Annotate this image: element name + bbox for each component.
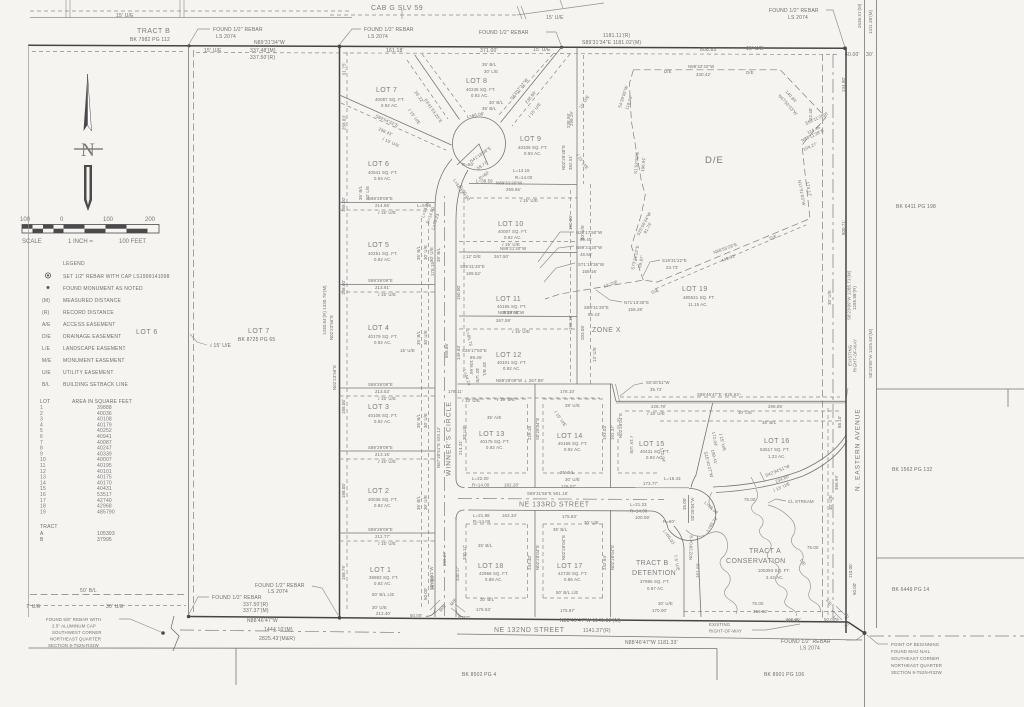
svg-text:N89'31'20"W: N89'31'20"W [496, 181, 523, 186]
svg-text:176.07': 176.07' [561, 484, 576, 489]
svg-text:S26'17'50"E: S26'17'50"E [462, 348, 487, 353]
svg-text:30' U/E: 30' U/E [475, 368, 480, 383]
svg-text:40036 SQ. FT.: 40036 SQ. FT. [368, 497, 398, 502]
svg-text:FOUND 1/2" REBAR: FOUND 1/2" REBAR [213, 27, 263, 33]
svg-text:LOT 4: LOT 4 [368, 325, 389, 332]
svg-text:15' U/E: 15' U/E [533, 47, 551, 53]
svg-text:0.92 AC.: 0.92 AC. [374, 581, 392, 586]
svg-text:ⅈ 15' U/E: ⅈ 15' U/E [210, 343, 232, 349]
svg-text:173.77': 173.77' [643, 481, 658, 486]
svg-text:19: 19 [40, 509, 46, 515]
svg-text:150.00': 150.00' [568, 215, 573, 230]
svg-text:S0'28'04"E: S0'28'04"E [535, 418, 540, 440]
svg-text:37995: 37995 [97, 537, 112, 543]
svg-text:FOUND 1/2" REBAR: FOUND 1/2" REBAR [479, 30, 529, 36]
svg-text:175.83': 175.83' [562, 514, 577, 519]
svg-text:35' B/L: 35' B/L [416, 245, 421, 260]
svg-text:SECTION 9-T52N-R32W: SECTION 9-T52N-R32W [48, 643, 100, 648]
svg-text:S71'13'36"W: S71'13'36"W [578, 262, 605, 267]
svg-text:R=60': R=60' [462, 162, 474, 167]
svg-text:2825.43'(M&R): 2825.43'(M&R) [259, 636, 295, 642]
svg-text:N89'29'09"W ⊥ 267.89': N89'29'09"W ⊥ 267.89' [496, 378, 544, 383]
svg-text:2.42 AC.: 2.42 AC. [766, 575, 784, 580]
svg-text:L/E: L/E [42, 346, 51, 352]
svg-text:182.28': 182.28' [504, 483, 519, 488]
svg-text:N02'28'04"E: N02'28'04"E [535, 545, 540, 570]
svg-text:LOT 17: LOT 17 [557, 563, 583, 570]
svg-text:1311.38'(M): 1311.38'(M) [868, 9, 873, 34]
svg-text:LEGEND: LEGEND [63, 261, 85, 267]
svg-text:LOT 8: LOT 8 [466, 78, 487, 85]
svg-text:50' B/L L/E: 50' B/L L/E [372, 592, 394, 597]
svg-text:N02'23'56"E: N02'23'56"E [332, 365, 337, 390]
svg-text:100 FEET: 100 FEET [119, 239, 146, 245]
svg-text:150.11': 150.11' [568, 315, 573, 330]
svg-text:R=14.00: R=14.00 [473, 519, 491, 524]
svg-text:12' D/E: 12' D/E [466, 254, 481, 259]
svg-text:178.10': 178.10' [560, 389, 575, 394]
svg-text:S89'29'09"E: S89'29'09"E [368, 382, 393, 387]
svg-text:150.00': 150.00' [456, 285, 461, 300]
svg-text:2636.91'(M): 2636.91'(M) [857, 3, 862, 28]
svg-text:S89'31'20"E: S89'31'20"E [584, 305, 609, 310]
svg-text:0.92 AC.: 0.92 AC. [486, 445, 504, 450]
svg-text:267.59': 267.59' [496, 318, 511, 323]
svg-text:30' U/E: 30' U/E [423, 330, 428, 345]
svg-text:808.83': 808.83' [700, 47, 718, 53]
svg-text:15' U/E: 15' U/E [400, 348, 415, 353]
svg-text:CAB G SLV 59: CAB G SLV 59 [371, 5, 423, 12]
svg-text:189.52': 189.52' [466, 271, 481, 276]
svg-text:LS 2074: LS 2074 [800, 646, 820, 652]
svg-text:LS 2074: LS 2074 [368, 34, 388, 40]
svg-text:30' U/E: 30' U/E [372, 605, 387, 610]
svg-text:0.92 AC.: 0.92 AC. [374, 419, 392, 424]
svg-text:30' U/E: 30' U/E [423, 495, 428, 510]
svg-text:BK 8725 PG 65: BK 8725 PG 65 [238, 337, 275, 343]
svg-text:FOUND 1/2" REBAR: FOUND 1/2" REBAR [364, 27, 414, 33]
svg-text:35' A/E: 35' A/E [487, 415, 502, 420]
svg-text:NORTHEAST QUARTER: NORTHEAST QUARTER [50, 637, 101, 642]
svg-text:S0'30'51"W: S0'30'51"W [429, 566, 434, 590]
svg-text:13' U/E: 13' U/E [592, 347, 597, 362]
svg-text:S89'46'47"E -525.63'-: S89'46'47"E -525.63'- [697, 392, 742, 397]
svg-text:40155 SQ. FT.: 40155 SQ. FT. [497, 304, 527, 309]
svg-text:192.37': 192.37' [610, 425, 615, 440]
svg-text:RIGHT-OF-WAY: RIGHT-OF-WAY [709, 629, 742, 634]
svg-text:N02'28'04"E: N02'28'04"E [688, 535, 694, 560]
svg-text:LOT 12: LOT 12 [496, 352, 522, 359]
svg-text:L=21.23: L=21.23 [630, 502, 647, 507]
svg-text:35.00': 35.00' [682, 497, 687, 510]
svg-text:800.71': 800.71' [841, 220, 846, 235]
svg-text:B/L: B/L [42, 382, 50, 388]
svg-text:40245 SQ. FT.: 40245 SQ. FT. [466, 87, 496, 92]
svg-text:175.87': 175.87' [560, 608, 575, 613]
svg-text:149.83': 149.83' [456, 345, 461, 360]
svg-text:40165 SQ. FT.: 40165 SQ. FT. [558, 441, 588, 446]
svg-text:S89'29'09"E: S89'29'09"E [368, 445, 393, 450]
svg-text:S89'31'34"E 1181.02'(M): S89'31'34"E 1181.02'(M) [582, 40, 641, 46]
svg-text:ⅈ 15' U/E: ⅈ 15' U/E [378, 459, 396, 464]
svg-text:337.48'(M): 337.48'(M) [250, 48, 276, 54]
svg-text:NE 132ND STREET: NE 132ND STREET [494, 627, 565, 634]
svg-text:30' U/E: 30' U/E [462, 425, 467, 440]
svg-text:40.00': 40.00' [845, 52, 860, 58]
svg-text:212.40': 212.40' [376, 611, 391, 616]
svg-text:228.78': 228.78' [651, 404, 666, 409]
svg-text:193.03': 193.03' [602, 425, 607, 440]
svg-text:FOUND 1/2" REBAR: FOUND 1/2" REBAR [769, 8, 819, 14]
svg-text:SECTION 9-T52N-R32W: SECTION 9-T52N-R32W [891, 670, 943, 675]
svg-text:FOUND 1/2" REBAR: FOUND 1/2" REBAR [781, 639, 831, 645]
svg-text:22.40': 22.40' [808, 107, 813, 120]
svg-text:35' B/L: 35' B/L [560, 470, 575, 475]
svg-text:30' U/E: 30' U/E [827, 290, 832, 305]
svg-text:(R): (R) [42, 310, 50, 316]
svg-text:269.27': 269.27' [442, 551, 447, 566]
svg-text:TRACT B: TRACT B [636, 560, 669, 567]
svg-text:0.92 AC.: 0.92 AC. [503, 366, 521, 371]
svg-text:42730 SQ. FT.: 42730 SQ. FT. [558, 571, 588, 576]
svg-text:37995 SQ. FT.: 37995 SQ. FT. [640, 579, 670, 584]
svg-text:L=16.43: L=16.43 [664, 476, 681, 481]
svg-text:40007 SQ. FT.: 40007 SQ. FT. [498, 229, 528, 234]
svg-text:N02'28'04"E: N02'28'04"E [610, 545, 615, 570]
svg-text:BK 6411 PG 198: BK 6411 PG 198 [896, 204, 936, 210]
svg-text:200: 200 [145, 217, 156, 223]
svg-text:LOT 1: LOT 1 [370, 567, 391, 574]
svg-text:CONSERVATION: CONSERVATION [726, 558, 786, 565]
svg-text:S0'23'09"W 1325.53'(M): S0'23'09"W 1325.53'(M) [868, 328, 873, 378]
svg-text:L=21.98: L=21.98 [473, 513, 490, 518]
svg-text:50.00': 50.00' [410, 613, 423, 618]
svg-text:DRAINAGE EASEMENT: DRAINAGE EASEMENT [63, 334, 121, 340]
svg-text:11.15 AC.: 11.15 AC. [688, 302, 708, 307]
svg-text:1330.84'(R) 1330.78'(M): 1330.84'(R) 1330.78'(M) [322, 285, 327, 335]
svg-text:35' B/L: 35' B/L [436, 247, 441, 262]
svg-text:N89'31'34"W: N89'31'34"W [254, 40, 285, 46]
svg-text:243.40': 243.40' [527, 555, 532, 570]
svg-text:178.11': 178.11' [448, 389, 463, 394]
svg-text:R=14.00: R=14.00 [630, 509, 648, 514]
svg-text:LOT 13: LOT 13 [479, 431, 505, 438]
svg-text:LOT 3: LOT 3 [368, 404, 389, 411]
svg-text:LOT 2: LOT 2 [368, 488, 389, 495]
svg-text:15' U/E: 15' U/E [116, 13, 134, 19]
svg-text:B: B [40, 537, 44, 543]
svg-text:1141.37'(R): 1141.37'(R) [583, 628, 611, 634]
svg-text:35' B/L: 35' B/L [358, 185, 363, 200]
svg-text:35' B/L: 35' B/L [416, 495, 421, 510]
svg-text:0.92 AC.: 0.92 AC. [471, 93, 489, 98]
svg-text:110.00': 110.00' [848, 563, 853, 578]
svg-text:258.83': 258.83' [342, 115, 347, 130]
svg-text:TRACT A: TRACT A [749, 548, 781, 555]
svg-text:MONUMENT EASEMENT: MONUMENT EASEMENT [63, 358, 125, 364]
svg-text:S89'29'09"E: S89'29'09"E [368, 196, 393, 201]
svg-text:30': 30' [866, 52, 873, 58]
svg-text:213.53': 213.53' [375, 389, 390, 394]
svg-text:MEASURED DISTANCE: MEASURED DISTANCE [63, 298, 122, 304]
svg-text:30' U/E: 30' U/E [106, 604, 124, 610]
svg-text:30' B/L: 30' B/L [489, 100, 504, 105]
svg-text:N89'31'20"W: N89'31'20"W [576, 245, 603, 250]
svg-text:38' U/E: 38' U/E [565, 403, 580, 408]
svg-text:N88'46'47"W 1141.32'(M): N88'46'47"W 1141.32'(M) [560, 618, 621, 624]
svg-text:D/E: D/E [746, 70, 754, 75]
svg-text:89.45': 89.45' [580, 237, 593, 242]
svg-text:1181.11'(R): 1181.11'(R) [603, 33, 631, 39]
svg-text:EXISTING: EXISTING [709, 622, 731, 627]
svg-text:30' U/E: 30' U/E [423, 413, 428, 428]
svg-text:S0'30'51"W: S0'30'51"W [646, 380, 670, 385]
svg-text:0.92 AC.: 0.92 AC. [374, 257, 392, 262]
svg-text:330.17': 330.17' [462, 545, 467, 560]
svg-text:N87'30'51"E 929.12': N87'30'51"E 929.12' [436, 426, 441, 468]
svg-text:S89'29'09"E: S89'29'09"E [368, 527, 393, 532]
svg-text:LS 2074: LS 2074 [268, 589, 288, 595]
svg-text:40941 SQ. FT.: 40941 SQ. FT. [368, 170, 398, 175]
svg-text:100: 100 [20, 217, 31, 223]
svg-text:R=14.00: R=14.00 [515, 175, 533, 180]
svg-text:ⅈ 15' U/E: ⅈ 15' U/E [520, 198, 538, 203]
svg-text:D/E: D/E [664, 69, 672, 74]
svg-text:LOT 7: LOT 7 [376, 87, 397, 94]
svg-text:LOT 9: LOT 9 [520, 136, 541, 143]
svg-text:35' B/L: 35' B/L [482, 62, 497, 67]
svg-text:ⅈ 15' U/E: ⅈ 15' U/E [378, 396, 396, 401]
svg-text:R=60': R=60' [663, 519, 675, 524]
svg-text:75.00: 75.00 [807, 545, 819, 550]
svg-text:NORTHEAST QUARTER: NORTHEAST QUARTER [891, 663, 942, 668]
svg-text:30' U/E: 30' U/E [584, 520, 599, 525]
svg-text:LOT 16: LOT 16 [764, 438, 790, 445]
svg-text:ⅈ 15' U/E: ⅈ 15' U/E [378, 541, 396, 546]
svg-text:D/E: D/E [705, 155, 724, 166]
svg-text:56.43': 56.43' [588, 312, 601, 317]
svg-text:FOUND MAG NAIL: FOUND MAG NAIL [891, 649, 931, 654]
svg-text:366.99': 366.99' [834, 475, 839, 490]
svg-text:40087 SQ. FT.: 40087 SQ. FT. [375, 97, 405, 102]
svg-text:LOT 6: LOT 6 [368, 161, 389, 168]
svg-text:0.88 AC.: 0.88 AC. [485, 577, 503, 582]
svg-text:100: 100 [103, 217, 114, 223]
svg-text:CL STREAM: CL STREAM [788, 499, 814, 504]
svg-text:RIGHT-OF-WAY: RIGHT-OF-WAY [853, 339, 858, 372]
svg-text:N89'29'09"W: N89'29'09"W [498, 310, 525, 315]
svg-text:35' B/L: 35' B/L [482, 106, 497, 111]
svg-text:N. EASTERN AVENUE: N. EASTERN AVENUE [855, 408, 862, 491]
svg-text:105393 SQ. FT.: 105393 SQ. FT. [758, 568, 790, 573]
svg-text:23.73': 23.73' [666, 265, 679, 270]
svg-text:SCALE: SCALE [22, 239, 42, 245]
svg-text:30' U/E: 30' U/E [429, 247, 434, 262]
svg-text:40175 SQ. FT.: 40175 SQ. FT. [480, 439, 510, 444]
svg-text:N71'13'36"E: N71'13'36"E [624, 300, 649, 305]
svg-text:53517 SQ. FT.: 53517 SQ. FT. [760, 447, 790, 452]
svg-text:POINT OF BEGINNING: POINT OF BEGINNING [891, 642, 940, 647]
svg-text:S89'31'56"E 501.15': S89'31'56"E 501.15' [527, 491, 568, 496]
svg-text:1444.10'(M): 1444.10'(M) [264, 627, 293, 633]
svg-text:LOT 14: LOT 14 [557, 433, 583, 440]
svg-text:170.00': 170.00' [652, 608, 667, 613]
svg-text:161.18': 161.18' [386, 48, 404, 54]
svg-text:N26'17'50"W: N26'17'50"W [576, 230, 603, 235]
svg-text:LOT 7: LOT 7 [248, 328, 270, 335]
svg-text:88.10': 88.10' [837, 415, 842, 428]
svg-text:110.00': 110.00' [786, 617, 801, 622]
svg-text:15' U/E: 15' U/E [204, 48, 222, 54]
svg-text:ⅈ 15' U/E: ⅈ 15' U/E [512, 329, 530, 334]
svg-text:7' U/E: 7' U/E [26, 604, 41, 610]
svg-text:106.66': 106.66' [469, 360, 474, 375]
svg-text:161.09': 161.09' [695, 563, 701, 578]
svg-text:S89'31'20"E: S89'31'20"E [460, 264, 485, 269]
svg-text:ⅈ 15' U/E: ⅈ 15' U/E [497, 397, 515, 402]
svg-text:ZONE X: ZONE X [592, 327, 621, 334]
svg-text:30' U/E: 30' U/E [565, 477, 580, 482]
svg-text:ⅈ 15' U/E: ⅈ 15' U/E [647, 411, 665, 416]
svg-text:0.93 AC.: 0.93 AC. [524, 151, 542, 156]
svg-text:BK 1562 PG 132: BK 1562 PG 132 [892, 467, 932, 473]
svg-text:134.80': 134.80' [841, 77, 846, 92]
svg-text:L=38.59: L=38.59 [476, 179, 493, 184]
svg-text:40339 SQ. FT.: 40339 SQ. FT. [518, 145, 548, 150]
svg-text:40179 SQ. FT.: 40179 SQ. FT. [368, 334, 398, 339]
svg-text:ⅈ 15' U/E: ⅈ 15' U/E [378, 210, 396, 215]
svg-text:75.00: 75.00 [744, 497, 756, 502]
svg-text:0.87 AC.: 0.87 AC. [647, 586, 665, 591]
svg-text:242.64': 242.64' [602, 555, 607, 570]
svg-text:LOT 19: LOT 19 [682, 286, 708, 293]
svg-text:SOUTHEAST CORNER: SOUTHEAST CORNER [891, 656, 939, 661]
svg-text:330.42': 330.42' [696, 72, 711, 77]
svg-text:S0'28'04"W: S0'28'04"W [690, 497, 695, 521]
svg-text:298.85': 298.85' [768, 404, 783, 409]
svg-text:30' U/E: 30' U/E [828, 495, 833, 510]
svg-text:267.50': 267.50' [494, 254, 509, 259]
svg-text:ⅈ 15' U/E: ⅈ 15' U/E [462, 398, 480, 403]
svg-text:1.23 AC.: 1.23 AC. [768, 454, 786, 459]
svg-text:485790: 485790 [97, 509, 115, 515]
svg-text:TRACT: TRACT [40, 524, 58, 530]
svg-text:FOUND 1/2" REBAR: FOUND 1/2" REBAR [212, 595, 262, 601]
svg-text:30' L/E: 30' L/E [484, 69, 498, 74]
svg-text:L=14.15: L=14.15 [513, 168, 530, 173]
svg-text:S19'31'22"E: S19'31'22"E [662, 258, 687, 263]
svg-text:50' B/L: 50' B/L [80, 588, 97, 594]
svg-text:658.86': 658.86' [444, 343, 449, 358]
svg-text:162.34': 162.34' [502, 513, 517, 518]
svg-text:ⅈ 15' U/E: ⅈ 15' U/E [629, 436, 634, 454]
svg-text:40101 SQ. FT.: 40101 SQ. FT. [497, 360, 527, 365]
svg-text:298.29': 298.29' [569, 111, 574, 126]
svg-text:A/E: A/E [42, 322, 51, 328]
svg-text:485531 SQ. FT.: 485531 SQ. FT. [683, 295, 715, 300]
svg-text:WINNER'S CIRCLE: WINNER'S CIRCLE [446, 401, 453, 476]
svg-text:337.50'(R): 337.50'(R) [250, 55, 275, 61]
svg-text:35' B/L: 35' B/L [416, 330, 421, 345]
svg-text:30' U/E: 30' U/E [423, 245, 428, 260]
svg-text:1 INCH =: 1 INCH = [68, 239, 93, 245]
svg-text:30' U/E: 30' U/E [658, 601, 673, 606]
svg-text:ⅈ 15' U/E: ⅈ 15' U/E [378, 292, 396, 297]
svg-text:LOT 10: LOT 10 [498, 221, 524, 228]
svg-text:337.37'(M): 337.37'(M) [243, 608, 269, 614]
svg-text:L=5.86: L=5.86 [417, 203, 432, 208]
svg-text:L=22.00: L=22.00 [472, 476, 489, 481]
svg-text:212.77': 212.77' [375, 534, 390, 539]
svg-text:214.31': 214.31' [458, 440, 463, 455]
svg-text:RECORD DISTANCE: RECORD DISTANCE [63, 310, 114, 316]
svg-text:R=14.00: R=14.00 [472, 483, 490, 488]
svg-text:35' B/L: 35' B/L [482, 362, 487, 377]
svg-text:0.92 AC.: 0.92 AC. [381, 103, 399, 108]
svg-text:LOT 18: LOT 18 [478, 563, 504, 570]
svg-text:0.92 AC.: 0.92 AC. [374, 503, 392, 508]
svg-text:0.94 AC.: 0.94 AC. [374, 176, 392, 181]
svg-text:LOT 6: LOT 6 [136, 329, 158, 336]
svg-text:N02'23'56"E: N02'23'56"E [329, 315, 334, 340]
svg-text:N02'28'40"E: N02'28'40"E [561, 145, 566, 170]
svg-text:BK 8502 PG 4: BK 8502 PG 4 [462, 672, 496, 678]
svg-text:LOT 5: LOT 5 [368, 242, 389, 249]
svg-text:371.00': 371.00' [480, 48, 498, 54]
svg-text:N: N [81, 140, 95, 161]
svg-text:35.72': 35.72' [650, 387, 663, 392]
svg-text:D/E: D/E [42, 334, 51, 340]
svg-text:(M): (M) [42, 298, 50, 304]
svg-text:50.00': 50.00' [852, 582, 857, 595]
svg-text:382.51': 382.51' [568, 155, 573, 170]
svg-text:75.00: 75.00 [752, 601, 764, 606]
svg-text:213.91': 213.91' [375, 285, 390, 290]
svg-text:NE 133RD STREET: NE 133RD STREET [519, 502, 590, 509]
svg-text:91.75': 91.75' [342, 62, 347, 75]
svg-text:30' B/L: 30' B/L [480, 597, 495, 602]
svg-text:188.00': 188.00' [341, 483, 346, 498]
svg-text:48.58': 48.58' [580, 252, 593, 257]
svg-text:N88'46'47"W 1181.33': N88'46'47"W 1181.33' [625, 640, 678, 646]
svg-text:N89'31'20"W: N89'31'20"W [500, 246, 527, 251]
svg-text:TRACT B: TRACT B [137, 28, 170, 35]
svg-text:40108 SQ. FT.: 40108 SQ. FT. [368, 413, 398, 418]
svg-text:LS 2074: LS 2074 [216, 34, 236, 40]
svg-text:SET 1/2" REBAR WITH CAP LS1999: SET 1/2" REBAR WITH CAP LS1999141098 [63, 274, 170, 280]
svg-text:228.18: 228.18 [527, 425, 532, 440]
svg-text:35' B/L: 35' B/L [553, 527, 568, 532]
svg-text:N89'32'42"W: N89'32'42"W [688, 64, 715, 69]
svg-text:U/E: U/E [42, 370, 51, 376]
svg-text:213.15': 213.15' [375, 452, 390, 457]
svg-text:N88'46'47"W: N88'46'47"W [247, 618, 278, 624]
svg-text:0.92 AC.: 0.92 AC. [504, 235, 522, 240]
svg-text:214.56': 214.56' [375, 203, 390, 208]
svg-text:SOUTHWEST CORNER: SOUTHWEST CORNER [52, 630, 102, 635]
svg-text:0.86 AC.: 0.86 AC. [564, 577, 582, 582]
svg-text:S89'29'09"E: S89'29'09"E [368, 278, 393, 283]
svg-text:42968 SQ. FT.: 42968 SQ. FT. [479, 571, 509, 576]
svg-text:50' B/L L/E: 50' B/L L/E [556, 590, 578, 595]
svg-text:FOUND 5/8" REBAR WITH: FOUND 5/8" REBAR WITH [46, 617, 101, 622]
svg-text:188.00': 188.00' [341, 399, 346, 414]
svg-text:100.08': 100.08' [635, 515, 650, 520]
svg-text:159.28': 159.28' [628, 307, 643, 312]
svg-text:203.06': 203.06' [580, 325, 585, 340]
svg-text:M/E: M/E [42, 358, 52, 364]
svg-text:FOUND MONUMENT AS NOTED: FOUND MONUMENT AS NOTED [63, 286, 143, 292]
